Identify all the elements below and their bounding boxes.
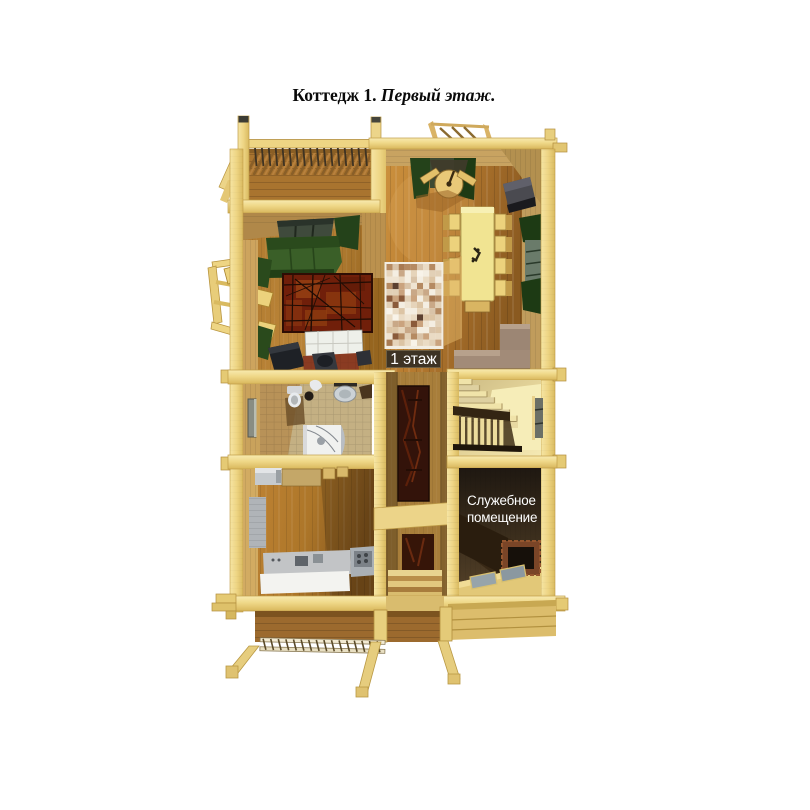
svg-text:помещение: помещение [467, 510, 537, 525]
svg-text:Служебное: Служебное [467, 493, 536, 508]
svg-text:Коттедж 1. Первый этаж.: Коттедж 1. Первый этаж. [292, 85, 495, 105]
svg-text:1 этаж: 1 этаж [390, 351, 437, 368]
